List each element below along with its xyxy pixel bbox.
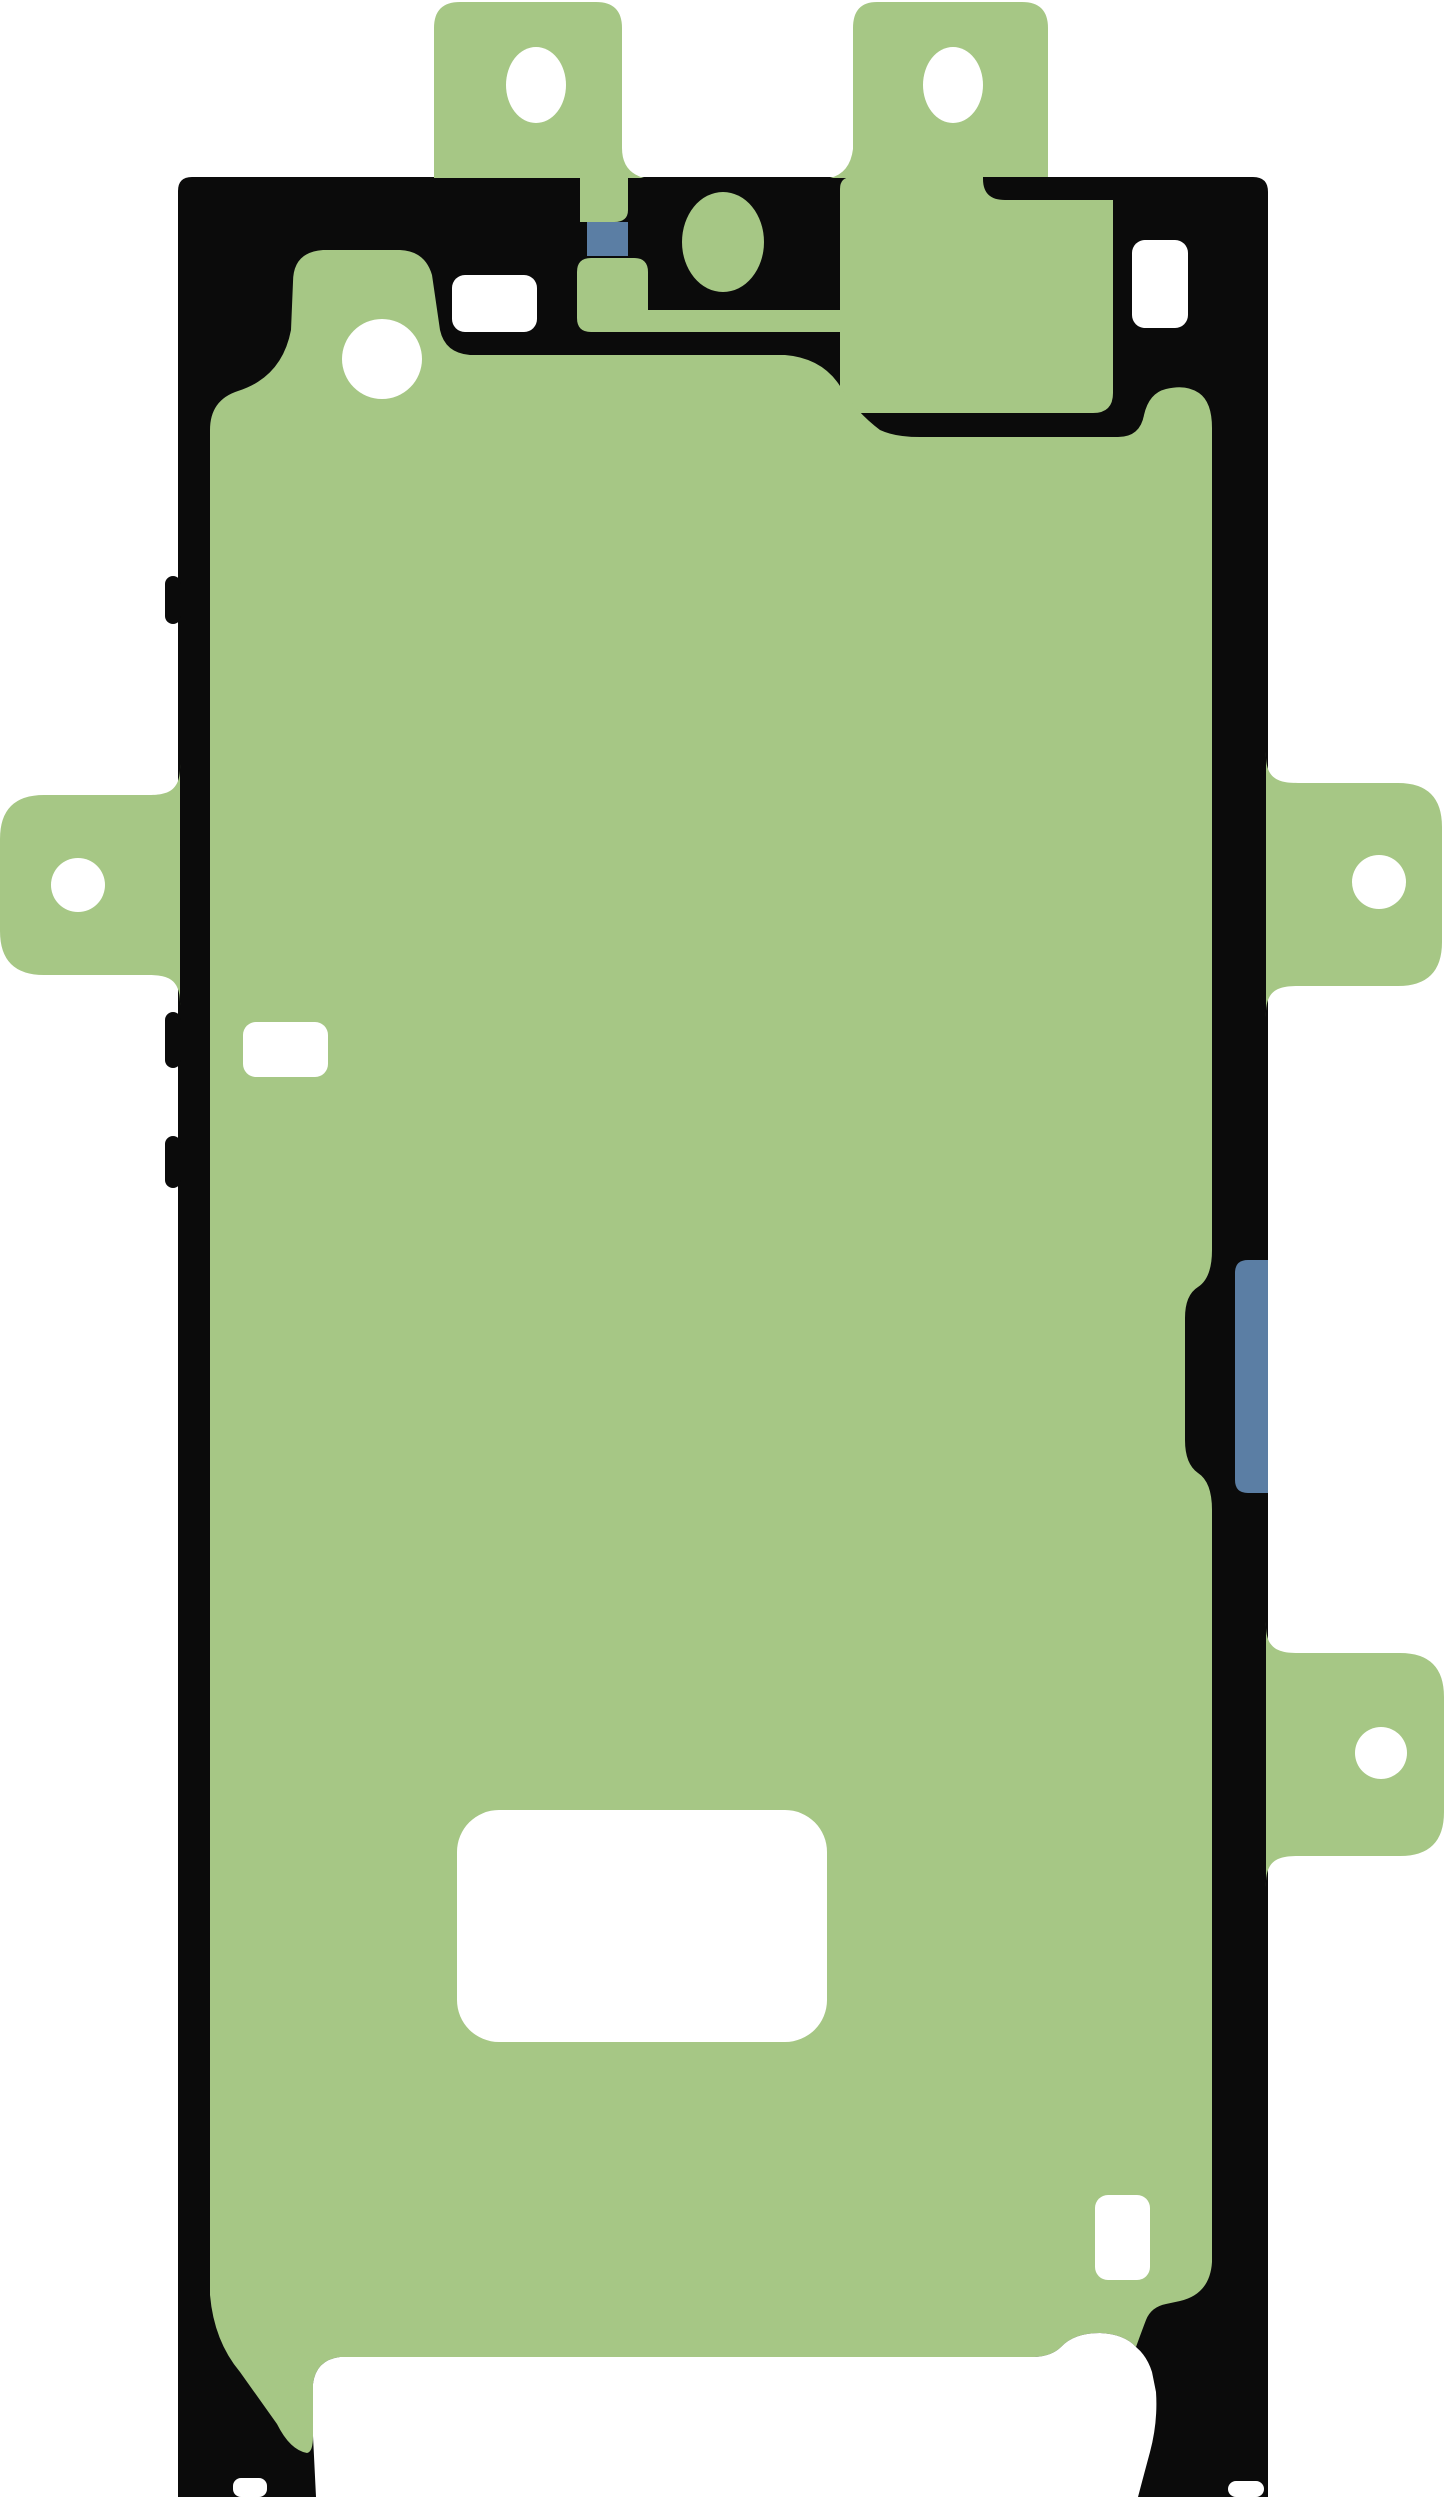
left-edge-bump-3 <box>165 1012 181 1068</box>
bottom-large-rect-cutout <box>457 1810 827 2042</box>
adhesive-sticker-drawing <box>0 0 1445 2497</box>
tab-neck-under-left-tab <box>580 176 628 222</box>
bottom-speaker-cutout <box>313 2333 1156 2497</box>
right-lower-tab-round-hole <box>1355 1727 1407 1779</box>
bottom-right-small-rect-cutout <box>1095 2195 1150 2280</box>
bottom-right-edge-notch <box>1228 2481 1264 2497</box>
blue-side-rect-marker <box>1235 1260 1268 1493</box>
blue-square-marker <box>587 222 628 256</box>
top-right-green-island <box>840 177 1113 413</box>
top-right-rect-cutout <box>1132 240 1188 328</box>
left-edge-bump-1 <box>165 576 181 624</box>
left-edge-bump-4 <box>165 1136 181 1188</box>
main-adhesive-area <box>210 250 1212 2453</box>
right-lower-pull-tab <box>1266 1622 1444 1887</box>
left-mid-rect-cutout <box>243 1022 328 1077</box>
product-illustration <box>0 0 1445 2497</box>
right-upper-tab-round-hole <box>1352 855 1406 909</box>
camera-ring-inner-green <box>682 192 764 292</box>
top-right-tab-oval-hole <box>923 47 983 123</box>
bottom-left-edge-notch <box>233 2478 267 2497</box>
top-left-rect-cutout <box>452 275 537 332</box>
top-left-tab-oval-hole <box>506 47 566 123</box>
left-tab-round-hole <box>51 858 105 912</box>
sensor-circle-cutout <box>342 319 422 399</box>
island-separator-band <box>983 177 1120 200</box>
